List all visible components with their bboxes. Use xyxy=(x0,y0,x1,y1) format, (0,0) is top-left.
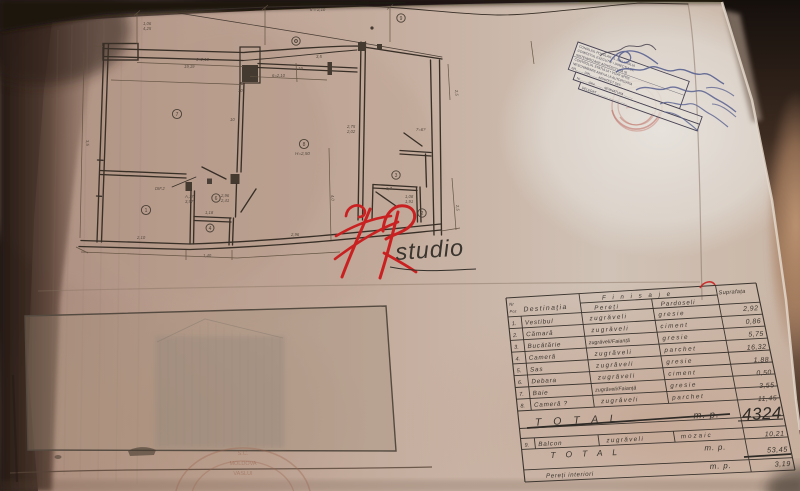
svg-text:5,75: 5,75 xyxy=(748,331,764,339)
svg-text:Cămară: Cămară xyxy=(526,330,554,339)
svg-text:6=2,10: 6=2,10 xyxy=(272,73,286,78)
svg-text:3.: 3. xyxy=(514,345,519,351)
svg-text:3,5: 3,5 xyxy=(85,140,90,147)
svg-text:6: 6 xyxy=(215,196,218,202)
svg-text:1,88: 1,88 xyxy=(754,357,770,365)
svg-text:7.: 7. xyxy=(519,392,524,398)
svg-text:3,19: 3,19 xyxy=(774,459,791,469)
svg-text:6,7: 6,7 xyxy=(386,186,392,191)
svg-text:Debara: Debara xyxy=(531,377,557,385)
svg-text:Poz: Poz xyxy=(509,309,516,313)
svg-text:9: 9 xyxy=(400,16,403,22)
svg-text:gresie: gresie xyxy=(666,358,693,366)
svg-text:2,5: 2,5 xyxy=(454,89,460,97)
svg-text:MOLDOVA: MOLDOVA xyxy=(229,461,256,467)
svg-text:6 = 2,10: 6 = 2,10 xyxy=(310,7,326,12)
svg-text:10,21: 10,21 xyxy=(765,431,785,439)
svg-text:1,91: 1,91 xyxy=(405,199,413,204)
svg-text:0,50: 0,50 xyxy=(756,369,772,377)
svg-text:Cameră: Cameră xyxy=(529,353,557,361)
svg-text:7: 7 xyxy=(176,112,179,118)
svg-text:1,40: 1,40 xyxy=(203,253,212,258)
svg-text:gresie: gresie xyxy=(670,381,697,389)
svg-text:1,18: 1,18 xyxy=(205,210,214,215)
svg-text:5.: 5. xyxy=(517,368,522,374)
svg-text:10: 10 xyxy=(230,117,235,122)
svg-text:4,0: 4,0 xyxy=(330,195,336,202)
svg-text:2: 2 xyxy=(421,211,424,217)
svg-text:ciment: ciment xyxy=(668,369,696,377)
svg-text:0,86: 0,86 xyxy=(746,318,762,326)
svg-text:2,5: 2,5 xyxy=(455,204,461,212)
svg-text:7=6?: 7=6? xyxy=(416,127,426,132)
svg-text:8: 8 xyxy=(303,142,306,148)
svg-text:VASLUI: VASLUI xyxy=(233,471,253,477)
svg-text:2,02: 2,02 xyxy=(346,129,356,134)
svg-text:9.: 9. xyxy=(524,443,529,449)
svg-text:Balcon: Balcon xyxy=(538,440,562,448)
svg-text:Sas: Sas xyxy=(530,366,544,374)
svg-text:3,5: 3,5 xyxy=(316,54,322,59)
svg-text:H=2,50: H=2,50 xyxy=(295,151,310,156)
svg-text:m. p.: m. p. xyxy=(710,461,732,471)
svg-text:gresie: gresie xyxy=(662,334,689,342)
svg-text:3: 3 xyxy=(395,173,398,179)
svg-text:53,45: 53,45 xyxy=(767,445,789,455)
svg-text:2,92: 2,92 xyxy=(742,305,759,313)
svg-text:4,25: 4,25 xyxy=(143,26,152,31)
svg-text:mozaic: mozaic xyxy=(681,432,713,440)
svg-text:DIF.2: DIF.2 xyxy=(155,186,165,191)
svg-text:Baie: Baie xyxy=(533,389,549,397)
svg-text:10: 10 xyxy=(238,88,243,93)
svg-text:6=2,10: 6=2,10 xyxy=(196,57,210,62)
svg-text:3,55: 3,55 xyxy=(759,382,775,390)
svg-text:m. p.: m. p. xyxy=(704,443,726,453)
svg-text:16,32: 16,32 xyxy=(747,344,767,352)
svg-text:3,97: 3,97 xyxy=(185,199,194,204)
svg-text:19: 19 xyxy=(298,66,303,71)
svg-text:studio: studio xyxy=(395,234,465,265)
svg-text:Pereți: Pereți xyxy=(594,303,620,311)
svg-text:8.: 8. xyxy=(520,403,525,409)
svg-text:1.: 1. xyxy=(512,321,517,327)
svg-text:1: 1 xyxy=(145,208,148,214)
svg-text:4: 4 xyxy=(209,226,212,232)
svg-text:2.: 2. xyxy=(512,333,518,339)
svg-text:11,45: 11,45 xyxy=(758,395,778,403)
svg-text:19,19: 19,19 xyxy=(184,64,195,69)
svg-text:Nr: Nr xyxy=(509,301,515,306)
svg-text:2,96: 2,96 xyxy=(290,232,300,237)
svg-text:6.: 6. xyxy=(518,380,523,386)
svg-text:2,10: 2,10 xyxy=(136,235,146,240)
svg-text:S.C.: S.C. xyxy=(238,451,249,457)
svg-text:4.: 4. xyxy=(515,356,520,362)
svg-text:2,41: 2,41 xyxy=(220,198,229,203)
